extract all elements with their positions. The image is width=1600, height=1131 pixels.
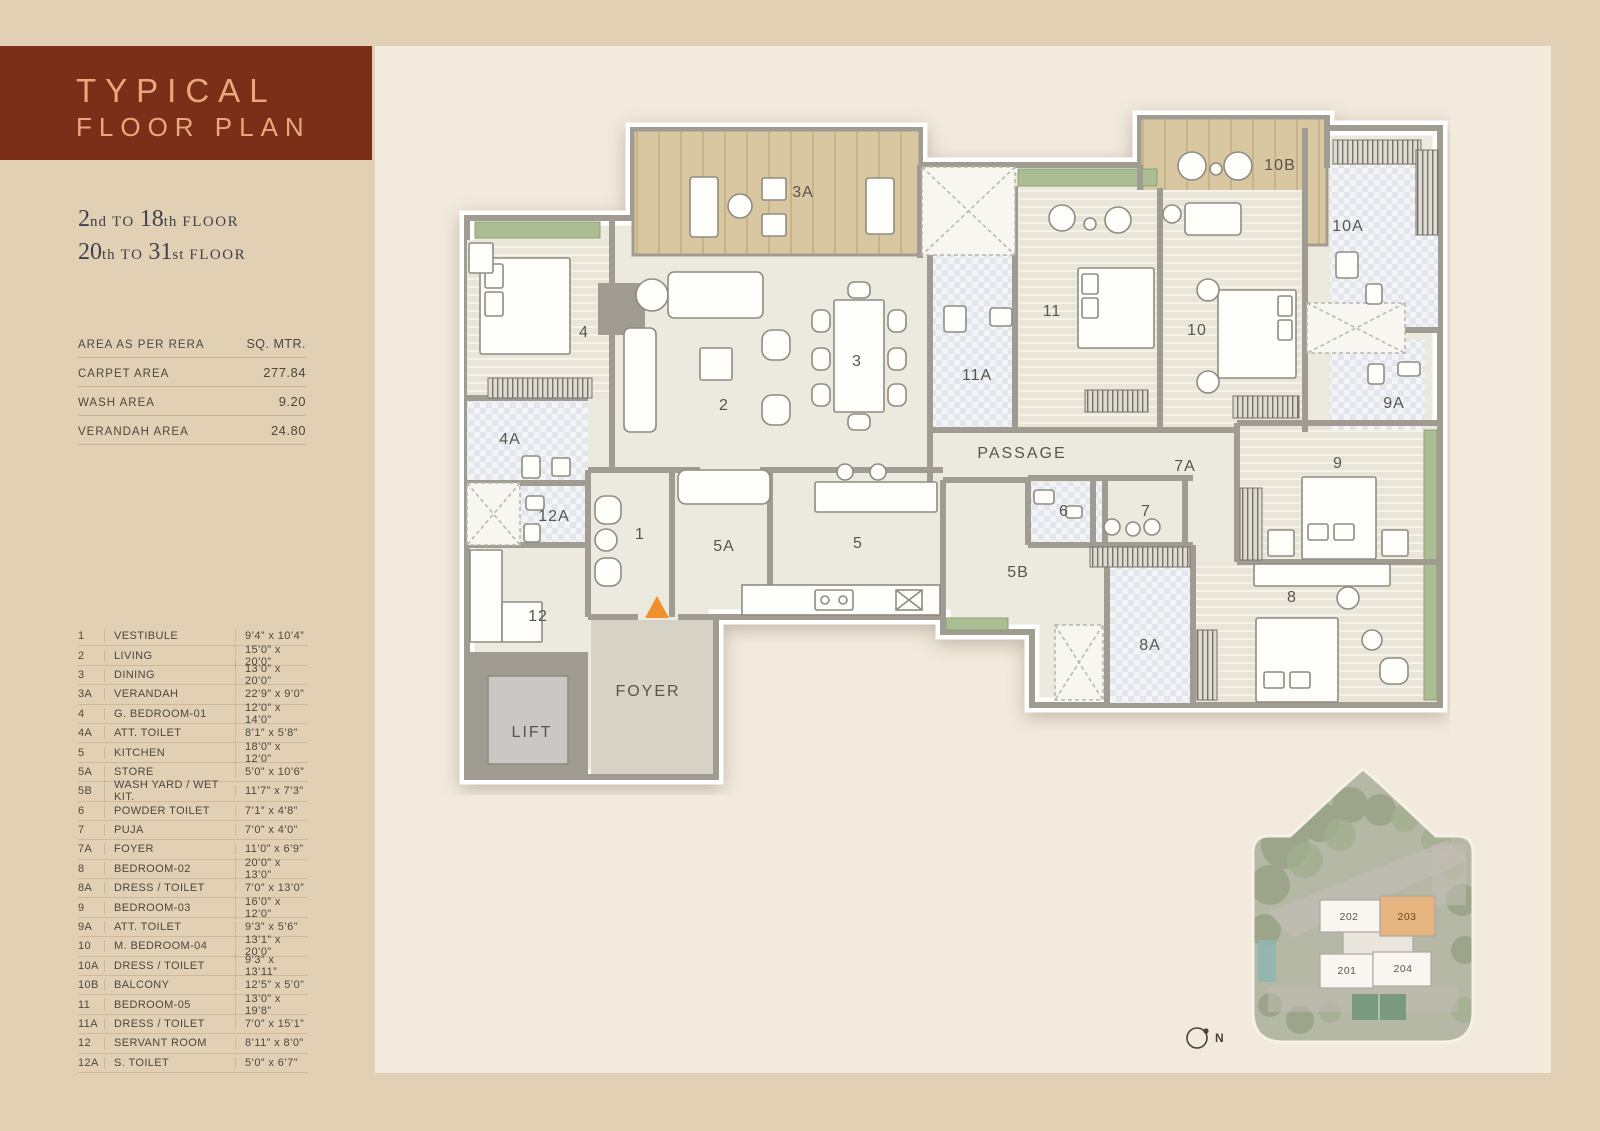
legend-room-name: DRESS / TOILET (104, 960, 235, 972)
legend-room-size: 11’7” x 7’3” (235, 785, 308, 797)
site-aerial (1245, 760, 1481, 1050)
legend-room-size: 5’0” x 10’6” (235, 766, 308, 778)
legend-room-size: 16’0” x 12’0” (235, 896, 308, 920)
legend-room-id: 9 (78, 902, 104, 914)
room-label-6: 6 (1059, 503, 1069, 520)
legend-room-size: 18’0” x 12’0” (235, 741, 308, 765)
room-label-12a: 12A (538, 508, 569, 525)
legend-room-id: 5 (78, 747, 104, 759)
legend-row: 9 BEDROOM-03 16’0” x 12’0” (78, 898, 308, 917)
foyer-label: FOYER (615, 683, 680, 700)
legend-room-id: 5B (78, 785, 104, 797)
legend-room-name: DRESS / TOILET (104, 1018, 235, 1030)
lift-cab (488, 676, 568, 764)
legend-room-name: S. TOILET (104, 1057, 235, 1069)
legend-room-size: 7’0” x 4’0” (235, 824, 308, 836)
page-title-line1: TYPICAL (76, 72, 277, 110)
legend-room-size: 12’5” x 5’0” (235, 979, 308, 991)
legend-room-id: 10 (78, 940, 104, 952)
legend-row: 5 KITCHEN 18’0” x 12’0” (78, 743, 308, 762)
legend-room-size: 5’0” x 6’7” (235, 1057, 308, 1069)
legend-room-size: 20’0” x 13’0” (235, 857, 308, 881)
legend-room-size: 8’11” x 8’0” (235, 1037, 308, 1049)
legend-row: 3 DINING 13’0” x 20’0” (78, 666, 308, 685)
legend-room-id: 3A (78, 688, 104, 700)
legend-room-name: M. BEDROOM-04 (104, 940, 235, 952)
room-label-1: 1 (635, 526, 645, 543)
room-label-8a: 8A (1139, 637, 1161, 654)
legend-row: 11 BEDROOM-05 13’0” x 19’8” (78, 995, 308, 1014)
legend-room-name: LIVING (104, 650, 235, 662)
legend-room-id: 11 (78, 999, 104, 1011)
legend-room-size: 8’1” x 5’8” (235, 727, 308, 739)
legend-room-id: 7A (78, 843, 104, 855)
legend-room-name: G. BEDROOM-01 (104, 708, 235, 720)
title-block: TYPICAL FLOOR PLAN (0, 46, 372, 160)
room-label-10a: 10A (1332, 218, 1363, 235)
legend-row: 7 PUJA 7’0” x 4’0” (78, 821, 308, 840)
legend-room-size: 9’3” x 13’11” (235, 954, 308, 978)
legend-room-name: KITCHEN (104, 747, 235, 759)
room-label-3: 3 (852, 353, 862, 370)
legend-room-name: BEDROOM-02 (104, 863, 235, 875)
area-header-label: AREA AS PER RERA (78, 339, 205, 351)
area-table-header: AREA AS PER RERA SQ. MTR. (78, 330, 306, 358)
legend-room-id: 4A (78, 727, 104, 739)
legend-room-name: ATT. TOILET (104, 727, 235, 739)
legend-room-id: 10B (78, 979, 104, 991)
floor-range-line: 20thTO31stFLOOR (78, 239, 251, 266)
area-table-row: WASH AREA 9.20 (78, 387, 306, 416)
room-label-7: 7 (1141, 503, 1151, 520)
room-label-10b: 10B (1264, 157, 1295, 174)
legend-room-id: 8A (78, 882, 104, 894)
page-title-line2: FLOOR PLAN (76, 112, 311, 143)
north-indicator: N (1187, 1028, 1224, 1048)
room-label-5b: 5B (1007, 564, 1029, 581)
legend-room-name: ATT. TOILET (104, 921, 235, 933)
legend-room-name: DINING (104, 669, 235, 681)
area-row-value: 277.84 (263, 365, 306, 380)
area-header-unit: SQ. MTR. (246, 337, 306, 351)
area-row-label: VERANDAH AREA (78, 426, 189, 438)
floor-range: 2ndTO18thFLOOR 20thTO31stFLOOR (78, 206, 251, 272)
room-label-5: 5 (853, 535, 863, 552)
legend-room-id: 5A (78, 766, 104, 778)
room-label-7a: 7A (1174, 458, 1196, 475)
legend-room-name: STORE (104, 766, 235, 778)
legend-row: 6 POWDER TOILET 7’1” x 4’8” (78, 802, 308, 821)
legend-room-name: PUJA (104, 824, 235, 836)
north-label: N (1215, 1031, 1224, 1045)
legend-room-name: SERVANT ROOM (104, 1037, 235, 1049)
legend-row: 4 G. BEDROOM-01 12’0” x 14’0” (78, 705, 308, 724)
room-label-11: 11 (1043, 303, 1062, 320)
legend-room-id: 8 (78, 863, 104, 875)
area-table-row: VERANDAH AREA 24.80 (78, 416, 306, 445)
legend-room-size: 7’1” x 4’8” (235, 805, 308, 817)
legend-room-name: BEDROOM-05 (104, 999, 235, 1011)
legend-room-id: 6 (78, 805, 104, 817)
legend-room-id: 2 (78, 650, 104, 662)
room-label-3a: 3A (792, 184, 814, 201)
legend-room-name: POWDER TOILET (104, 805, 235, 817)
lift-label: LIFT (512, 724, 553, 741)
legend-room-id: 12A (78, 1057, 104, 1069)
legend-room-size: 13’0” x 20’0” (235, 663, 308, 687)
passage-label: PASSAGE (977, 445, 1066, 462)
room-label-9: 9 (1333, 455, 1343, 472)
room-label-4: 4 (579, 324, 589, 341)
room-label-10: 10 (1187, 322, 1207, 339)
area-row-label: CARPET AREA (78, 368, 169, 380)
legend-room-name: VERANDAH (104, 688, 235, 700)
room-label-11a: 11A (962, 367, 992, 384)
legend-room-id: 12 (78, 1037, 104, 1049)
legend-row: 10A DRESS / TOILET 9’3” x 13’11” (78, 957, 308, 976)
legend-room-name: FOYER (104, 843, 235, 855)
legend-room-name: BALCONY (104, 979, 235, 991)
floor-range-line: 2ndTO18thFLOOR (78, 206, 251, 233)
area-table: AREA AS PER RERA SQ. MTR. CARPET AREA 27… (78, 330, 306, 445)
legend-room-size: 13’0” x 19’8” (235, 993, 308, 1017)
legend-room-name: BEDROOM-03 (104, 902, 235, 914)
legend-room-id: 1 (78, 630, 104, 642)
room-label-5a: 5A (713, 538, 735, 555)
legend-room-size: 12’0” x 14’0” (235, 702, 308, 726)
brochure-page: { "header": {"title_line1": "TYPICAL", "… (0, 0, 1600, 1131)
room-label-4a: 4A (499, 431, 521, 448)
legend-room-id: 10A (78, 960, 104, 972)
site-key-plan: 202 203 201 204 N (1150, 748, 1490, 1058)
area-row-label: WASH AREA (78, 397, 155, 409)
area-row-value: 9.20 (279, 394, 306, 409)
area-table-row: CARPET AREA 277.84 (78, 358, 306, 387)
legend-row: 12 SERVANT ROOM 8’11” x 8’0” (78, 1034, 308, 1053)
legend-room-name: VESTIBULE (104, 630, 235, 642)
legend-room-id: 11A (78, 1018, 104, 1030)
legend-room-size: 7’0” x 13’0” (235, 882, 308, 894)
room-legend: 1 VESTIBULE 9’4” x 10’4” 2 LIVING 15’0” … (78, 627, 308, 1073)
legend-room-id: 7 (78, 824, 104, 836)
room-label-12: 12 (528, 608, 548, 625)
unit-label-202: 202 (1339, 911, 1358, 923)
legend-row: 11A DRESS / TOILET 7’0” x 15’1” (78, 1015, 308, 1034)
room-label-8: 8 (1287, 589, 1297, 606)
legend-row: 5B WASH YARD / WET KIT. 11’7” x 7’3” (78, 782, 308, 801)
legend-room-id: 4 (78, 708, 104, 720)
room-label-2: 2 (719, 397, 729, 414)
legend-room-name: WASH YARD / WET KIT. (104, 779, 235, 803)
room-label-9a: 9A (1383, 395, 1405, 412)
legend-row: 8 BEDROOM-02 20’0” x 13’0” (78, 860, 308, 879)
unit-label-204: 204 (1393, 963, 1412, 975)
area-row-value: 24.80 (271, 423, 306, 438)
unit-label-201: 201 (1337, 965, 1356, 977)
legend-room-id: 3 (78, 669, 104, 681)
unit-label-203: 203 (1397, 911, 1416, 923)
legend-room-name: DRESS / TOILET (104, 882, 235, 894)
legend-room-id: 9A (78, 921, 104, 933)
legend-row: 12A S. TOILET 5’0” x 6’7” (78, 1054, 308, 1073)
legend-room-size: 9’4” x 10’4” (235, 630, 308, 642)
legend-room-size: 22’9” x 9’0” (235, 688, 308, 700)
legend-room-size: 9’3” x 5’6” (235, 921, 308, 933)
legend-room-size: 7’0” x 15’1” (235, 1018, 308, 1030)
legend-room-size: 11’0” x 6’9” (235, 843, 308, 855)
floor-plan: 1 2 3 3A 4 4A 5 5A 5B 6 7 7A 8 8A 9 9A 1… (440, 100, 1450, 795)
